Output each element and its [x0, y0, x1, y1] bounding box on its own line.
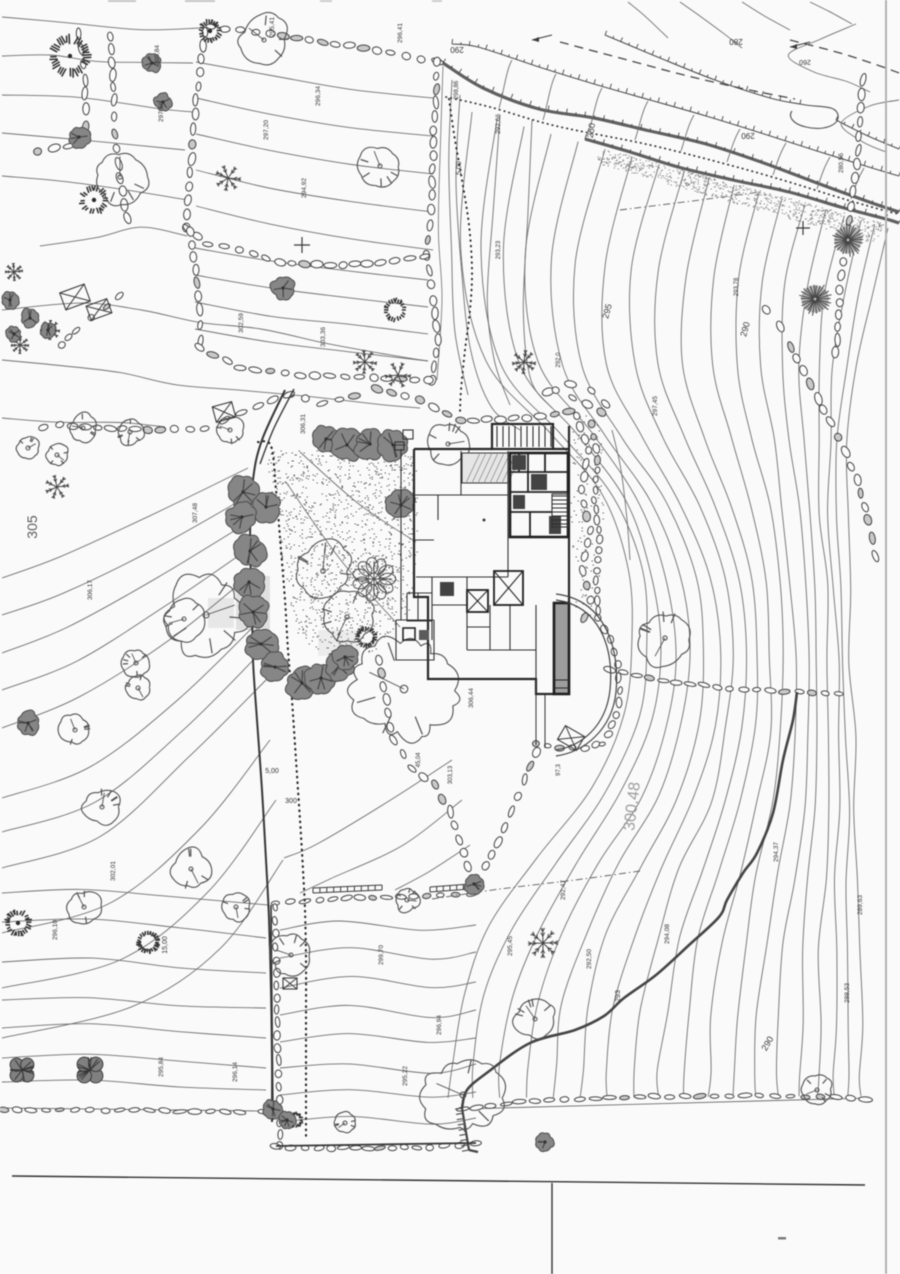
svg-text:297,45: 297,45 [652, 396, 659, 416]
svg-text:306,31: 306,31 [300, 414, 307, 434]
svg-text:260: 260 [799, 58, 811, 65]
svg-text:303,13: 303,13 [448, 765, 454, 784]
svg-text:294,92: 294,92 [301, 178, 308, 198]
svg-text:296,41: 296,41 [397, 23, 404, 43]
svg-text:297,20: 297,20 [263, 120, 270, 140]
svg-text:292,50: 292,50 [586, 949, 593, 969]
svg-text:290: 290 [450, 45, 464, 54]
svg-text:292,66: 292,66 [495, 114, 502, 134]
svg-text:303,36: 303,36 [320, 327, 327, 347]
svg-text:45,04: 45,04 [416, 752, 422, 768]
svg-text:302,01: 302,01 [110, 861, 117, 881]
svg-text:296,94: 296,94 [436, 1015, 443, 1035]
svg-text:307,48: 307,48 [192, 503, 199, 523]
svg-text:306,17: 306,17 [87, 580, 94, 600]
svg-text:296,34: 296,34 [315, 86, 322, 106]
svg-text:296,10: 296,10 [52, 920, 59, 940]
svg-text:295,41: 295,41 [269, 17, 276, 37]
svg-text:294,37: 294,37 [773, 842, 780, 862]
svg-text:288,53: 288,53 [844, 983, 851, 1003]
svg-text:292,47: 292,47 [560, 880, 567, 900]
svg-text:295,22: 295,22 [402, 1066, 409, 1086]
svg-text:295,45: 295,45 [507, 936, 514, 956]
svg-text:290: 290 [741, 131, 755, 140]
svg-text:292,0: 292,0 [556, 352, 562, 368]
svg-text:305: 305 [24, 515, 40, 539]
svg-text:294,08: 294,08 [664, 924, 671, 944]
svg-text:5,00: 5,00 [456, 161, 463, 175]
svg-text:280,55: 280,55 [838, 153, 845, 173]
svg-text:299,70: 299,70 [378, 945, 385, 965]
svg-text:295,84: 295,84 [154, 45, 161, 65]
svg-text:293: 293 [615, 990, 622, 1002]
svg-text:296,14: 296,14 [232, 1062, 239, 1082]
svg-text:289,63: 289,63 [857, 895, 864, 915]
svg-text:280: 280 [729, 37, 743, 46]
svg-text:300: 300 [285, 798, 297, 805]
svg-text:293,78: 293,78 [734, 277, 740, 296]
svg-text:297,66: 297,66 [158, 102, 165, 122]
svg-text:293,23: 293,23 [496, 240, 502, 259]
svg-text:5,00: 5,00 [265, 768, 279, 775]
svg-text:306,44: 306,44 [468, 688, 475, 708]
svg-text:302,59: 302,59 [238, 313, 245, 333]
svg-text:97,3: 97,3 [556, 764, 562, 776]
svg-text:295,84: 295,84 [158, 1057, 165, 1077]
svg-text:15,00: 15,00 [162, 936, 169, 954]
svg-text:298,86: 298,86 [454, 80, 460, 99]
